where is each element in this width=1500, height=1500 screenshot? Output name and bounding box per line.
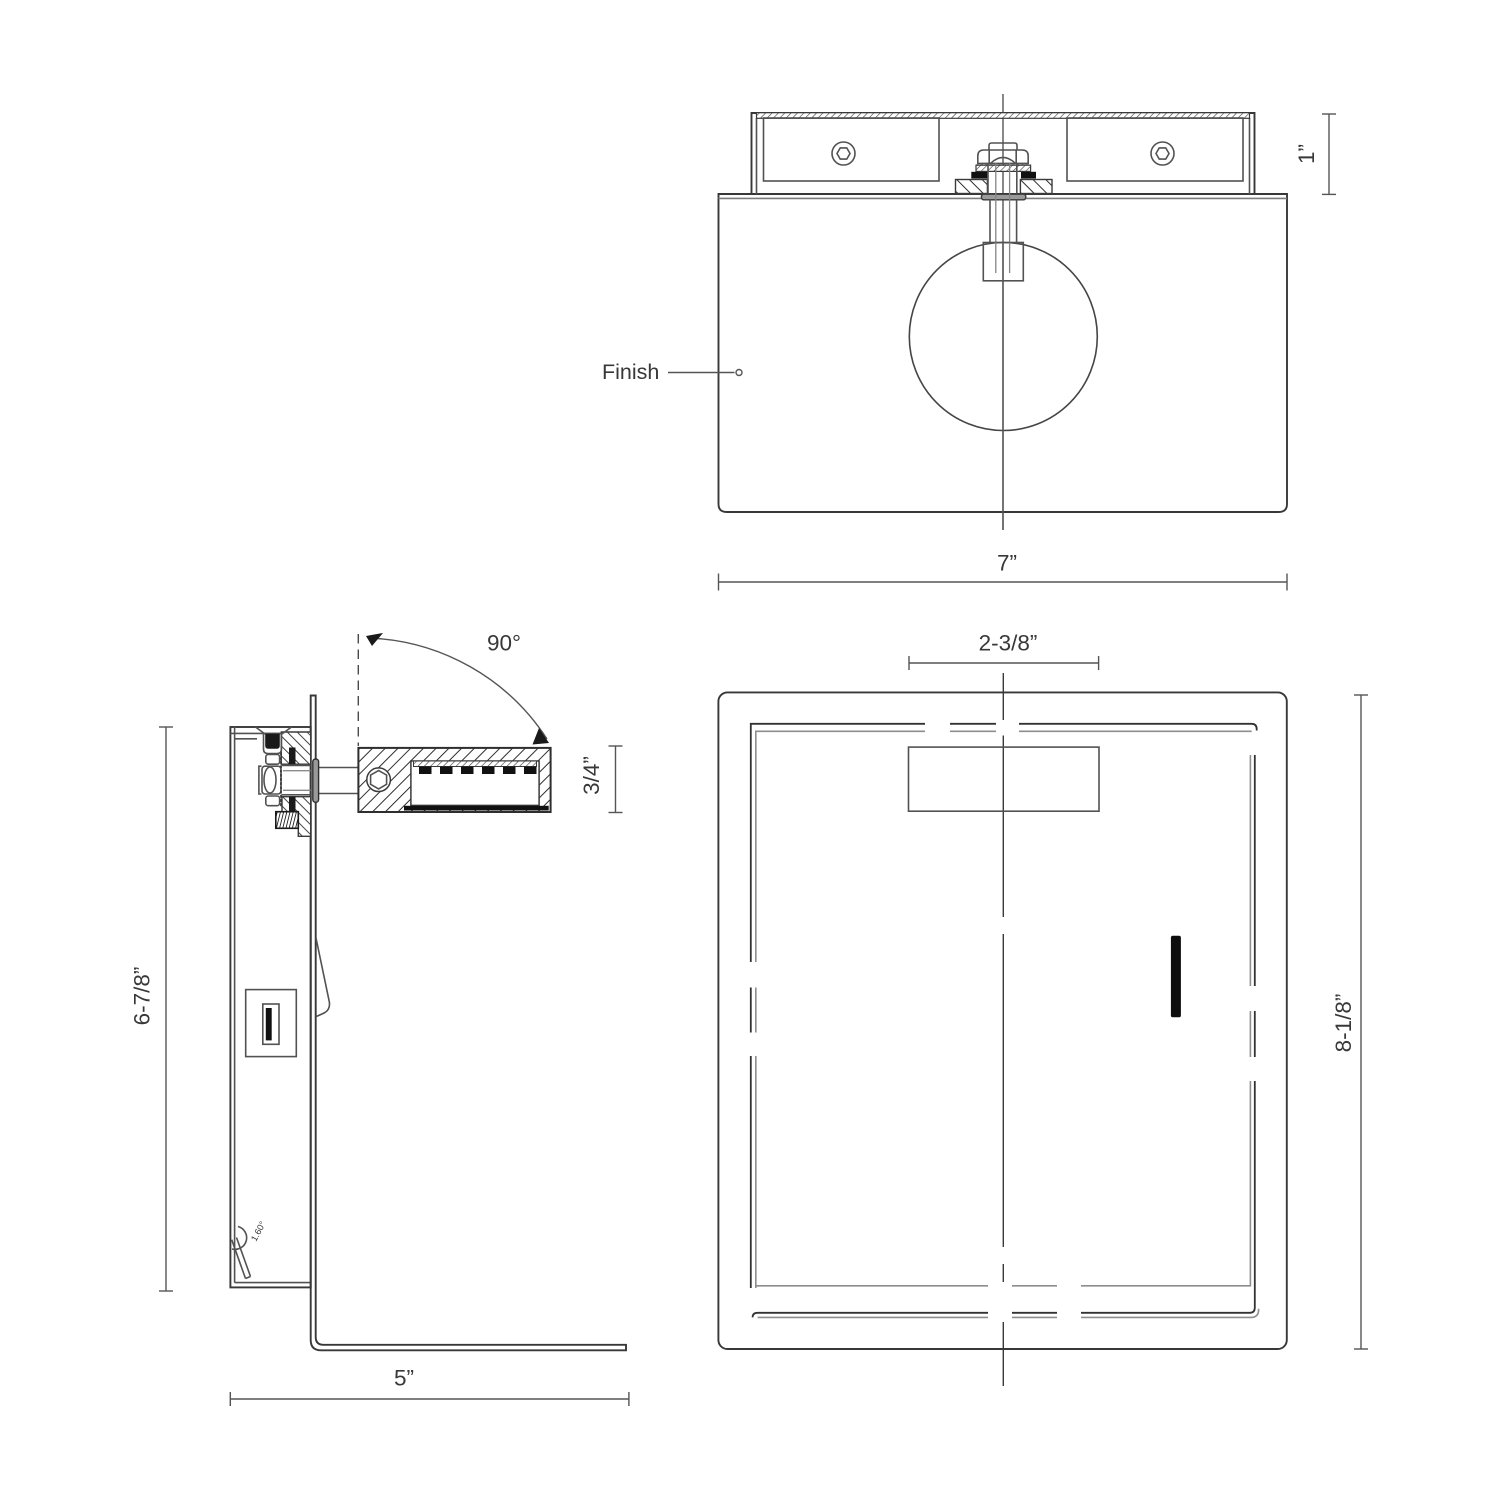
- svg-text:Finish: Finish: [602, 360, 659, 384]
- svg-text:5”: 5”: [394, 1366, 414, 1391]
- svg-text:8-1/8”: 8-1/8”: [1331, 994, 1356, 1053]
- svg-text:7”: 7”: [997, 551, 1017, 576]
- svg-text:1”: 1”: [1294, 144, 1319, 164]
- svg-text:6-7/8”: 6-7/8”: [130, 967, 155, 1026]
- svg-text:2-3/8”: 2-3/8”: [979, 631, 1038, 656]
- svg-text:3/4”: 3/4”: [579, 756, 604, 795]
- svg-text:90°: 90°: [487, 631, 521, 656]
